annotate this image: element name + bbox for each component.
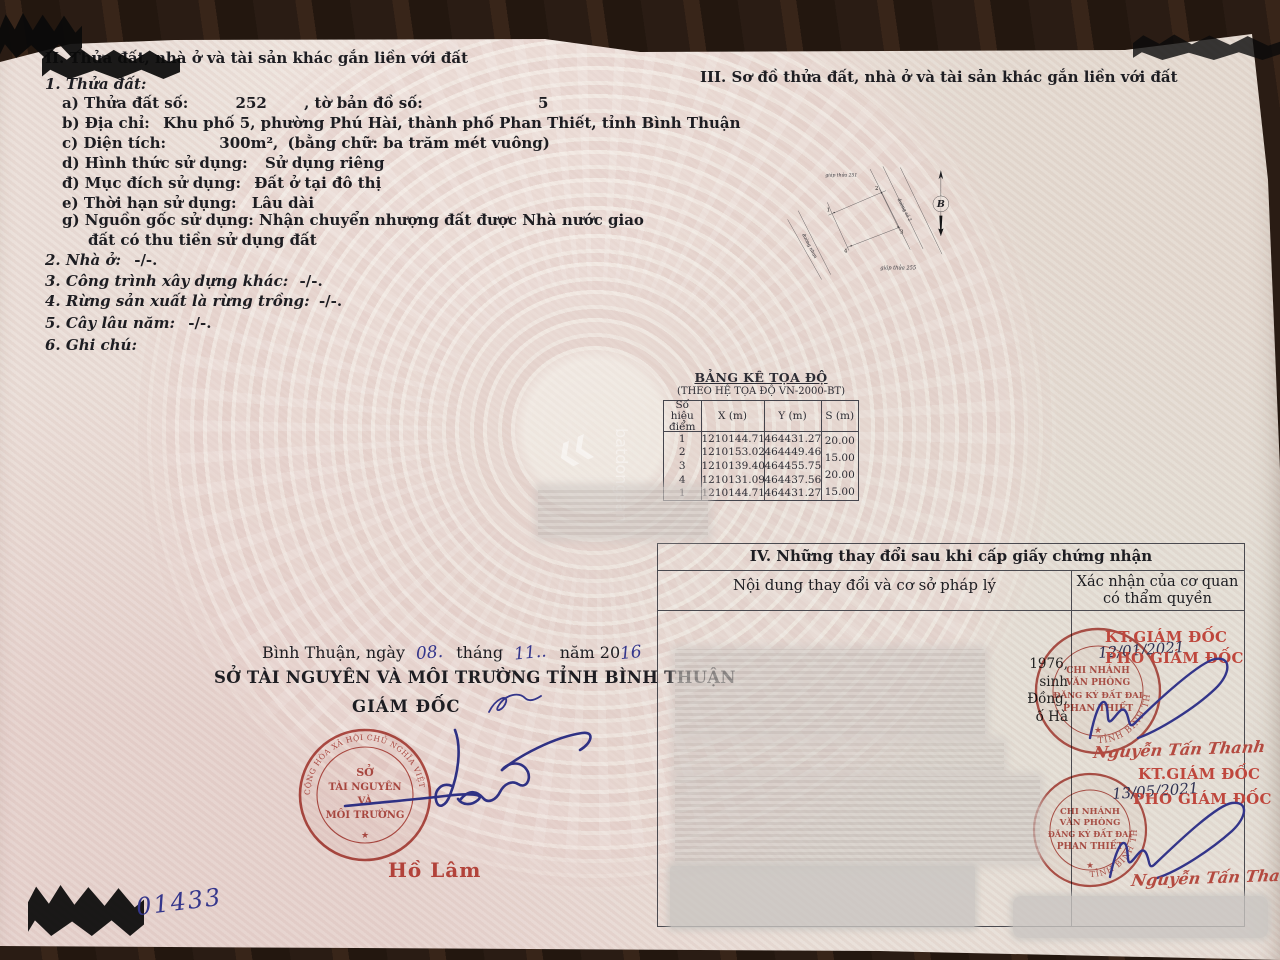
cell-s: 20.00 [822,469,859,481]
date-thang: tháng [456,643,503,662]
section3-heading: III. Sơ đồ thửa đất, nhà ở và tài sản kh… [700,68,1178,86]
parcel-edge-2-3 [879,188,900,231]
certificate-paper: II. Thửa đất, nhà ở và tài sản khác gắn … [0,0,1280,960]
value-dien-tich: 300m², [219,134,278,152]
cell-x: 1210131.09 [702,474,764,486]
point4-dot [850,245,851,246]
value-dia-chi: Khu phố 5, phường Phú Hài, thành phố Pha… [163,114,740,132]
col-header-x: X (m) [702,401,764,432]
redaction-blur-bottom-right [1013,896,1268,938]
line-nha-o: 2. Nhà ở: -/-. [45,250,157,270]
value-thua-dat-so: 252 [236,94,267,112]
value-nha-o: -/-. [134,251,157,269]
coordinate-table-grid: Số hiệu điểm 1 2 3 4 1 X (m) 1210144.71 … [663,400,859,501]
entry2-kt-giam-doc: KT.GIÁM ĐỐC [1138,765,1260,783]
col2-header-line1: Xác nhận của cơ quan [1077,574,1239,590]
line-cay-lau-nam: 5. Cây lâu năm: -/-. [45,313,211,333]
label-dien-tich: c) Diện tích: [62,134,166,152]
serial-number: 01433 [135,883,224,921]
value-muc-dich: Đất ở tại đô thị [254,174,381,192]
issuer-signature [320,715,610,820]
line-nguon-goc: g) Nguồn gốc sử dụng: Nhận chuyển nhượng… [62,210,648,250]
handwritten-day: 08. [415,642,444,664]
cell-x: 1210153.02 [702,446,764,458]
parcel-edge-4-1 [827,202,849,250]
cell-x: 1210144.71 [702,433,764,445]
section4-col1-header: Nội dung thay đổi và cơ sở pháp lý [658,576,1071,594]
label-ghi-chu: 6. Ghi chú: [45,336,137,354]
redaction-blur-sec4-gap [674,740,1004,773]
value-hinh-thuc: Sử dụng riêng [265,154,385,172]
parcel-edge-3-4 [847,227,900,247]
handwritten-month: 11.. [513,641,547,664]
label-thua-dat-so: a) Thửa đất số: [62,94,188,112]
col-header-y: Y (m) [765,401,821,432]
cell-x: 1210139.40 [702,460,764,472]
line-dien-tich: c) Diện tích: 300m², (bằng chữ: ba trăm … [62,133,550,153]
line-muc-dich: đ) Mục đích sử dụng: Đất ở tại đô thị [62,173,381,193]
cell-y: 464449.46 [765,446,821,458]
cell-point: 4 [664,474,701,486]
redaction-blur-sec4-2 [675,776,1040,864]
point1-label: 1 [827,207,830,213]
value-cay-lau-nam: -/-. [188,314,211,332]
point3-dot [897,226,898,227]
value-to-ban-do: 5 [538,94,548,112]
entry1-signature [1075,650,1245,750]
date-prefix: Bình Thuận, ngày [262,643,405,662]
col2-header-line2: có thẩm quyền [1103,591,1212,607]
cell-s: 20.00 [822,435,859,447]
redaction-topleft-blob [0,12,82,58]
date-nam: năm 20 [560,643,620,662]
roadnhua-line-outer [788,219,822,279]
value-cong-trinh: -/-. [300,272,323,290]
cell-point: 1 [664,433,701,445]
coordinate-table-subtitle: (THEO HỆ TỌA ĐỘ VN-2000-BT) [663,386,859,397]
cell-y: 464431.27 [765,433,821,445]
section4-heading: IV. Những thay đổi sau khi cấp giấy chứn… [658,547,1244,565]
compass-letter: B [936,199,945,210]
redaction-blur-sec4-1 [675,649,985,737]
plot-diagram: 1 2 3 4 giáp thửa 251 giáp thửa 255 đườn… [780,85,1255,395]
cell-point: 2 [664,446,701,458]
label-dia-chi: b) Địa chỉ: [62,114,150,132]
roadnhua-label: đường nhựa [800,232,819,260]
photo-of-land-certificate: II. Thửa đất, nhà ở và tài sản khác gắn … [0,0,1280,960]
cell-y: 464431.27 [765,487,821,499]
label-hinh-thuc: d) Hình thức sử dụng: [62,154,248,172]
issue-date-line: Bình Thuận, ngày 08. tháng 11.. năm 2016 [262,643,642,663]
point2-label: 2 [875,186,878,192]
cell-s: 15.00 [822,452,859,464]
coordinate-table-title: BẢNG KÊ TỌA ĐỘ [663,370,859,385]
coordinate-table: BẢNG KÊ TỌA ĐỘ (THEO HỆ TỌA ĐỘ VN-2000-B… [663,370,859,501]
label-rung: 4. Rừng sản xuất là rừng trồng: [45,292,310,310]
line-cong-trinh: 3. Công trình xây dựng khác: -/-. [45,271,323,291]
col-header-s: S (m) [822,401,859,432]
stamp2-star: ★ [1086,861,1094,871]
parcel-edge-1-2 [828,191,886,216]
issuer-title: GIÁM ĐỐC [352,697,461,716]
adjacent-bottom-label: giáp thửa 255 [880,264,916,271]
col-header-point: Số hiệu điểm [664,401,701,432]
line-hinh-thuc: d) Hình thức sử dụng: Sử dụng riêng [62,153,384,173]
point3-label: 3 [900,229,903,235]
line-rung: 4. Rừng sản xuất là rừng trồng: -/-. [45,291,342,311]
line-ghi-chu: 6. Ghi chú: [45,335,137,355]
cell-x: 1210144.71 [702,487,764,499]
label-nguon-goc: g) Nguồn gốc sử dụng: [62,211,254,229]
line-dia-chi: b) Địa chỉ: Khu phố 5, phường Phú Hài, t… [62,113,741,133]
redaction-serial-block [28,884,144,936]
section2-sub1: 1. Thửa đất: [45,74,146,94]
redaction-topright-blob [1133,34,1280,60]
point4-label: 4 [844,248,848,254]
road2-label: đường số 2 [896,197,914,223]
label-cong-trinh: 3. Công trình xây dựng khác: [45,272,288,290]
issuer-stamp-star: ★ [361,831,369,841]
section4-col2-header: Xác nhận của cơ quan có thẩm quyền [1071,574,1244,608]
point2-dot [881,192,882,193]
cell-point: 3 [664,460,701,472]
label-muc-dich: đ) Mục đích sử dụng: [62,174,241,192]
value-dien-tich-chu: (bằng chữ: ba trăm mét vuông) [288,134,550,152]
issuer-agency: SỞ TÀI NGUYÊN VÀ MÔI TRƯỜNG TỈNH BÌNH TH… [214,668,736,687]
label-nha-o: 2. Nhà ở: [45,251,121,269]
handwritten-year: 16 [619,642,643,664]
line-thua-dat-so: a) Thửa đất số: 252 , tờ bản đồ số: 5 [62,93,548,113]
point1-dot [833,212,834,213]
redaction-blur-sec4-3 [670,866,975,928]
value-rung: -/-. [319,292,342,310]
compass-needle-icon [938,216,943,236]
label-to-ban-do: , tờ bản đồ số: [304,94,423,112]
cell-y: 464437.56 [765,474,821,486]
redaction-blur-center [538,487,708,538]
roadnhua-line-inner [798,211,831,275]
cell-y: 464455.75 [765,460,821,472]
cell-s: 15.00 [822,486,859,498]
label-cay-lau-nam: 5. Cây lâu năm: [45,314,175,332]
issuer-signer-name: Hồ Lâm [388,858,481,882]
compass-north: B [933,170,949,236]
adjacent-top-label: giáp thửa 251 [825,172,857,179]
